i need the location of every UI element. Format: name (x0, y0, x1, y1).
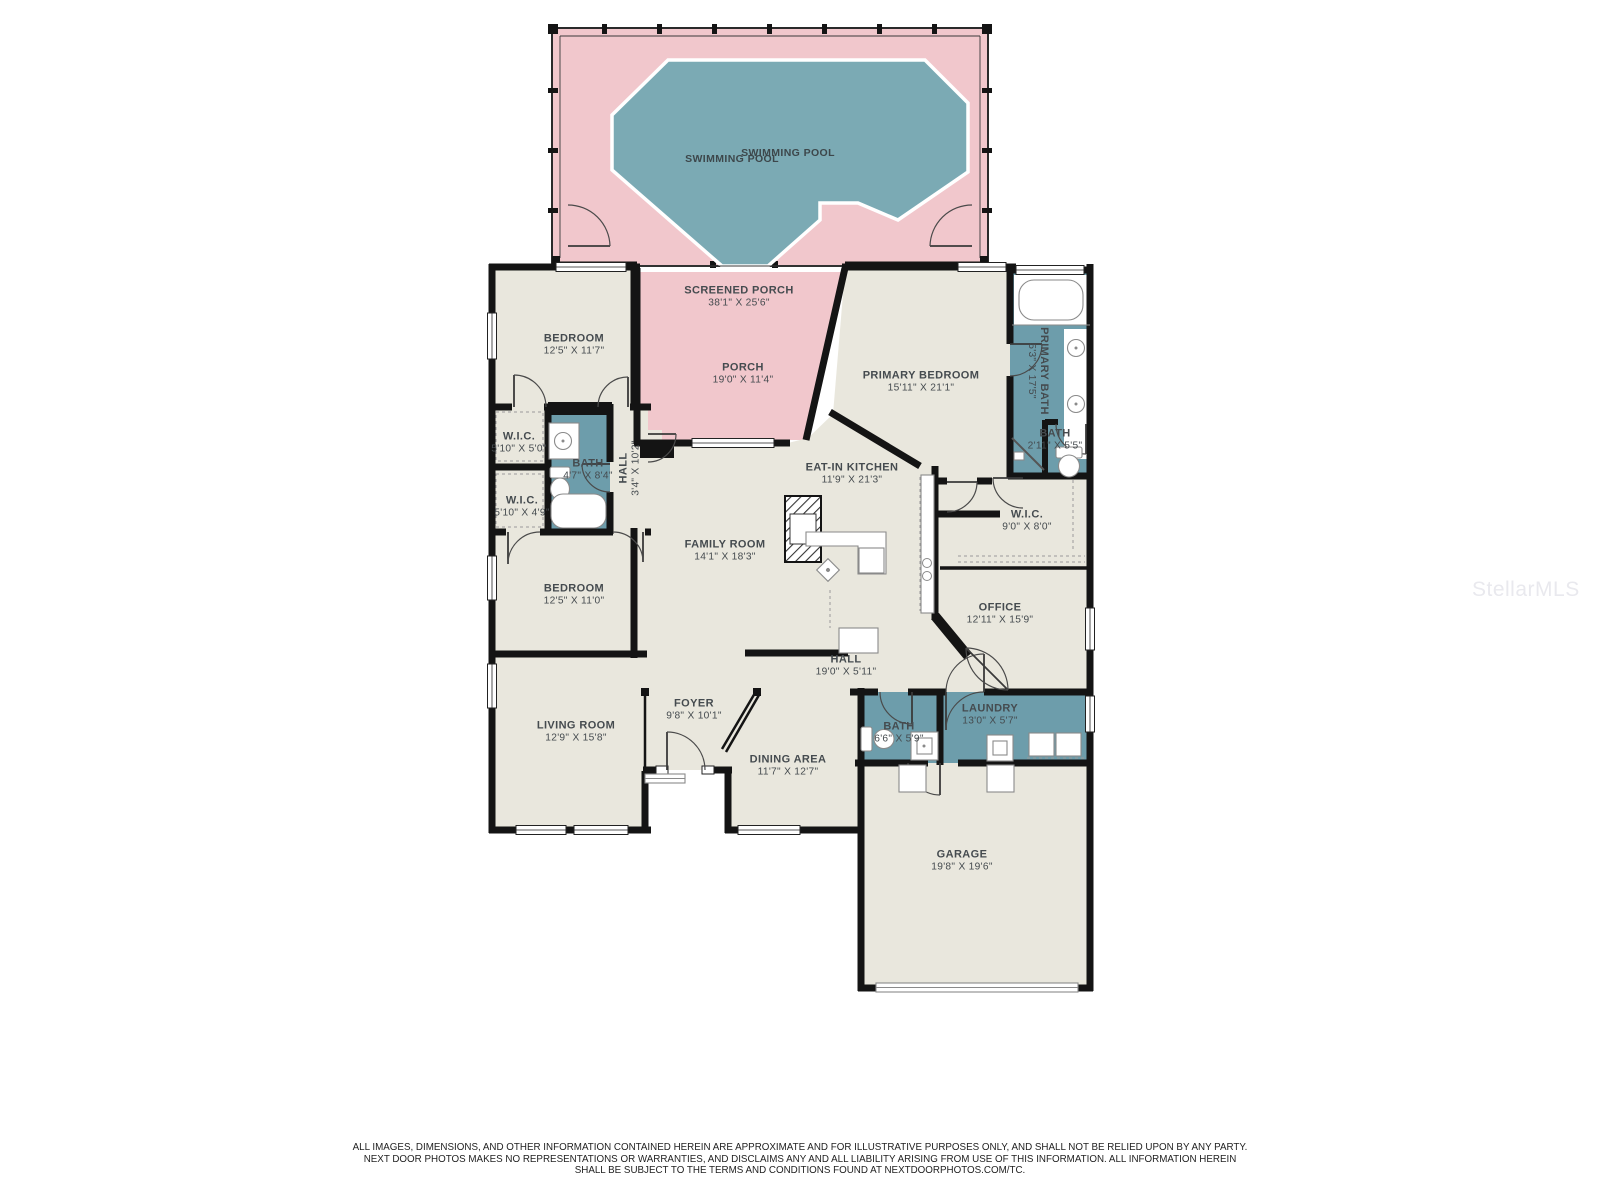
room-label-hall-2: HALL19'0" X 5'11" (816, 654, 877, 678)
floorplan-graphic (0, 0, 1600, 1200)
room-label-hall-1: HALL3'4" X 10'2" (618, 440, 642, 496)
room-label-swimming-pool-b: SWIMMING POOL (741, 147, 835, 159)
room-label-laundry: LAUNDRY13'0" X 5'7" (962, 703, 1018, 727)
room-label-bath-2: BATH6'6" X 5'9" (874, 721, 924, 745)
room-label-foyer: FOYER9'8" X 10'1" (666, 698, 722, 722)
room-label-family-room: FAMILY ROOM14'1" X 18'3" (685, 539, 766, 563)
office-area (930, 560, 1090, 692)
room-label-bedroom-1: BEDROOM12'5" X 11'7" (544, 333, 605, 357)
kitchen-counter (921, 475, 934, 613)
hallette-area (935, 470, 1010, 516)
disclaimer-text: ALL IMAGES, DIMENSIONS, AND OTHER INFORM… (0, 1142, 1600, 1177)
room-label-living-room: LIVING ROOM12'9" X 15'8" (537, 720, 615, 744)
room-label-eat-in-kitchen: EAT-IN KITCHEN11'9" X 21'3" (806, 462, 899, 486)
room-label-porch: PORCH19'0" X 11'4" (713, 362, 774, 386)
room-label-wic-3: W.I.C.9'0" X 8'0" (1002, 509, 1052, 533)
dryer-icon (1056, 733, 1081, 756)
disclaimer-line-3: SHALL BE SUBJECT TO THE TERMS AND CONDIT… (0, 1165, 1600, 1177)
wall-chunk-bath1 (548, 402, 612, 415)
room-label-office: OFFICE12'11" X 15'9" (967, 602, 1034, 626)
room-label-garage: GARAGE19'8" X 19'6" (931, 849, 992, 873)
bathtub-icon (551, 494, 606, 528)
toilet-icon (861, 727, 872, 751)
room-label-bath-1: BATH4'7" X 8'4" (563, 458, 613, 482)
room-label-wic-2: W.I.C.5'10" X 4'9" (494, 495, 550, 519)
stellar-mls-watermark: StellarMLS (1472, 578, 1580, 602)
room-label-primary-bath: PRIMARY BATH5'3" X 17'5" (1025, 327, 1049, 415)
kitchen-island-appliance (859, 548, 884, 573)
room-label-bedroom-2: BEDROOM12'5" X 11'0" (544, 583, 605, 607)
room-label-wic-1: W.I.C.5'10" X 5'0" (491, 431, 547, 455)
wall-chunk-family (640, 441, 674, 458)
room-label-bath-3: BATH2'11" X 5'5" (1028, 428, 1083, 452)
screened-porch-structure (548, 24, 992, 268)
floorplan-page: SWIMMING POOL SWIMMING POOL SCREENED POR… (0, 0, 1600, 1200)
room-label-screened-porch: SCREENED PORCH38'1" X 25'6" (684, 285, 794, 309)
utility-unit-icon (987, 765, 1014, 792)
water-heater-icon (899, 765, 926, 792)
washer-icon (1029, 733, 1054, 756)
room-label-dining-area: DINING AREA11'7" X 12'7" (750, 754, 827, 778)
room-label-primary-bedroom: PRIMARY BEDROOM15'11" X 21'1" (863, 370, 980, 394)
shower-valve (1014, 452, 1024, 460)
disclaimer-line-1: ALL IMAGES, DIMENSIONS, AND OTHER INFORM… (0, 1142, 1600, 1154)
disclaimer-line-2: NEXT DOOR PHOTOS MAKES NO REPRESENTATION… (0, 1154, 1600, 1166)
kitchen-counter-2 (839, 628, 878, 653)
bathtub-icon (1019, 280, 1083, 320)
